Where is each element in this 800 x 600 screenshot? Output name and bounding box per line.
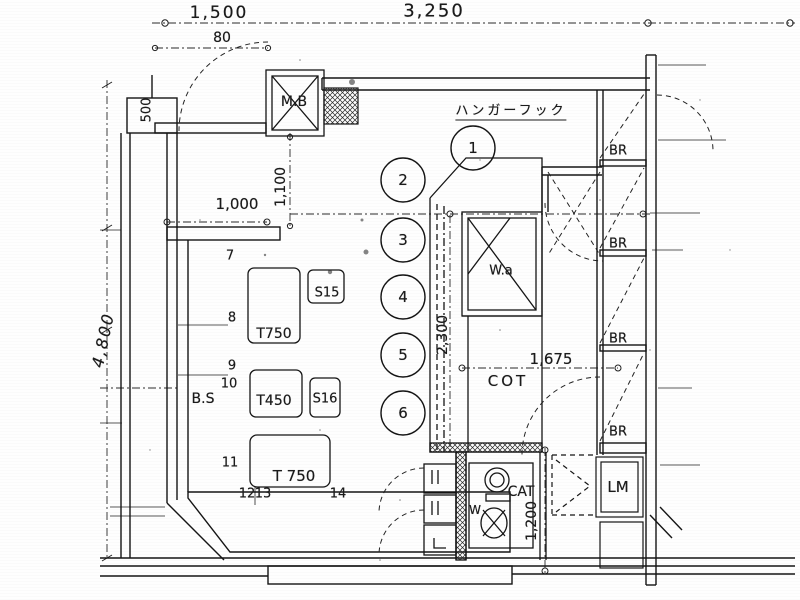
label-counter: COT	[488, 372, 528, 390]
dim-1200: 1,200	[524, 501, 540, 541]
dim-top-right: 3,250	[403, 1, 465, 22]
label-bs: B.S	[192, 391, 215, 407]
label-br-2: BR	[609, 237, 627, 252]
seat-number-1: 1	[468, 139, 478, 157]
dim-offset-80: 80	[213, 30, 231, 46]
dim-2300: 2,300	[435, 315, 451, 355]
mark-12: 12	[239, 487, 256, 502]
dim-top-left: 1,500	[190, 3, 249, 23]
cabinet-boxes	[424, 464, 456, 555]
seat-number-2: 2	[398, 171, 408, 189]
mark-7: 7	[226, 249, 234, 264]
label-wash-area: W.a	[489, 264, 512, 279]
label-wc: W	[469, 503, 481, 517]
dim-1675: 1,675	[530, 350, 573, 368]
shaft-hatch	[324, 88, 358, 124]
label-br-1: BR	[609, 144, 627, 159]
label-hanger-hook: ハンガーフック	[455, 100, 566, 121]
furniture	[248, 268, 344, 487]
label-stool-15: S15	[315, 286, 340, 301]
label-br-3: BR	[609, 332, 627, 347]
label-table-750-b: T 750	[273, 467, 316, 485]
label-stool-16: S16	[313, 392, 338, 407]
mark-14: 14	[330, 487, 347, 502]
counter	[430, 158, 542, 452]
basin-icon	[485, 468, 509, 492]
door-arcs	[179, 42, 713, 555]
dim-1000: 1,000	[216, 195, 259, 213]
mark-13: 13	[255, 487, 272, 502]
seat-number-3: 3	[398, 231, 408, 249]
label-br-4: BR	[609, 425, 627, 440]
label-table-450: T450	[256, 393, 291, 409]
mark-10: 10	[221, 377, 238, 392]
dimension-markers	[102, 20, 793, 574]
mark-8: 8	[228, 311, 236, 326]
label-laundry-machine: LM	[607, 478, 628, 496]
dim-500: 500	[140, 98, 155, 123]
seat-number-5: 5	[398, 346, 408, 364]
dim-1100: 1,100	[273, 167, 289, 207]
seat-number-4: 4	[398, 288, 408, 306]
label-table-750-a: T750	[256, 326, 291, 342]
label-meter-box: M.B	[281, 94, 307, 110]
label-cat: CAT	[508, 484, 535, 500]
mark-11: 11	[222, 456, 239, 471]
laundry-area	[552, 455, 643, 568]
mark-9: 9	[228, 359, 236, 374]
dimension-lines	[100, 23, 795, 573]
seat-number-6: 6	[398, 404, 408, 422]
floor-plan-sheet: 1,500 3,250 80 500 4,800 1,000 1,100 2,3…	[0, 0, 800, 600]
